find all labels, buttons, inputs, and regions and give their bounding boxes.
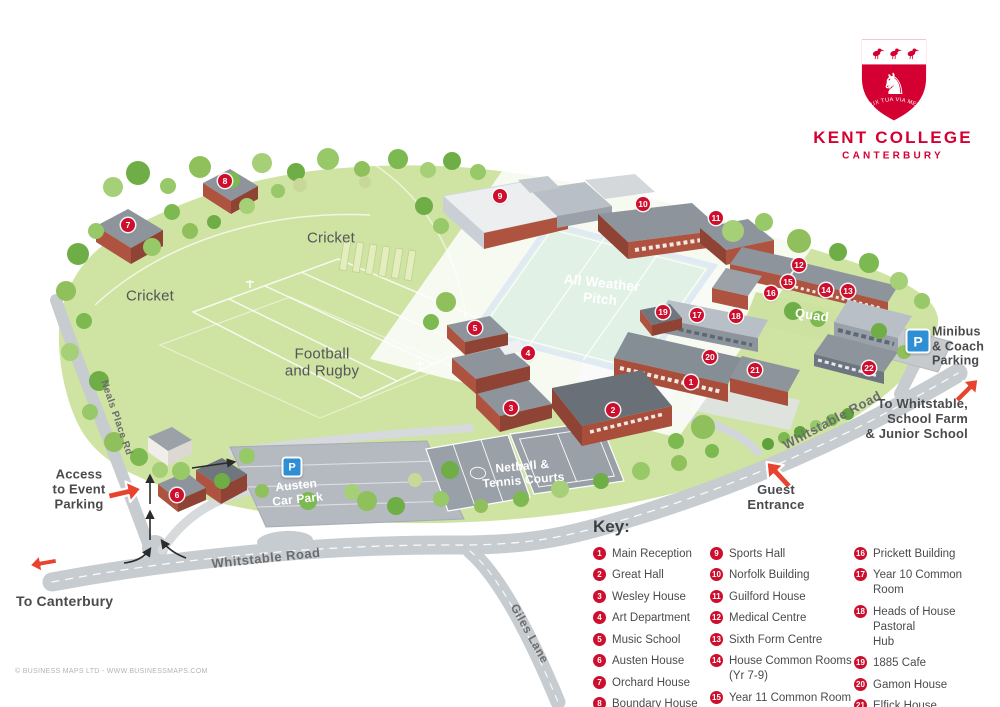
key-column-1: 1Main Reception2Great Hall3Wesley House4… [593,547,710,707]
key-item-label: Art Department [612,611,690,626]
key-item-label: Orchard House [612,676,690,691]
map-marker-3: 3 [504,401,518,415]
key-item-label: Year 11 Common Room [729,691,851,706]
key-item-6: 6Austen House [593,654,710,669]
minibus-coach-parking-label: Minibus & Coach Parking [932,324,984,368]
key-item-label: Music School [612,633,680,648]
access-event-parking-label: Access to Event Parking [53,466,106,511]
football-rugby-field-label: Football and Rugby [285,346,359,381]
key-item-label: Sports Hall [729,547,785,562]
key-item-number: 9 [710,547,723,560]
key-item-label: Norfolk Building [729,568,810,583]
map-marker-6: 6 [170,488,184,502]
key-item-number: 5 [593,633,606,646]
key-item-number: 6 [593,654,606,667]
key-item-number: 14 [710,654,723,667]
key-item-number: 3 [593,590,606,603]
key-column-3: 16Prickett Building17Year 10 Common Room… [854,547,995,707]
key-item-number: 11 [710,590,723,603]
to-canterbury-label: To Canterbury [16,593,113,609]
key-item-5: 5Music School [593,633,710,648]
key-column-2: 9Sports Hall10Norfolk Building11Guilford… [710,547,854,707]
map-marker-16: 16 [764,286,778,300]
map-marker-5: 5 [468,321,482,335]
key-item-label: Elfick House [873,699,937,707]
key-item-label: Prickett Building [873,547,955,562]
to-canterbury-arrow-icon [28,552,58,573]
key-item-number: 17 [854,568,867,581]
map-marker-13: 13 [841,284,855,298]
key-item-number: 8 [593,697,606,707]
map-marker-8: 8 [218,174,232,188]
key-item-11: 11Guilford House [710,590,854,605]
key-item-2: 2Great Hall [593,568,710,583]
austen-parking-icon: P [282,457,303,478]
key-item-8: 8Boundary House [593,697,710,707]
map-marker-2: 2 [606,403,620,417]
key-item-label: House Common Rooms (Yr 7-9) [729,654,852,684]
map-marker-18: 18 [729,309,743,323]
key-item-label: Year 10 Common Room [873,568,995,598]
key-item-number: 20 [854,678,867,691]
key-item-number: 7 [593,676,606,689]
key-item-15: 15Year 11 Common Room [710,691,854,706]
key-item-label: Wesley House [612,590,686,605]
key-item-3: 3Wesley House [593,590,710,605]
key-item-number: 13 [710,633,723,646]
horse-icon: ♞ [881,67,907,101]
map-marker-7: 7 [121,218,135,232]
key-title: Key: [593,517,995,537]
key-columns: 1Main Reception2Great Hall3Wesley House4… [593,547,995,707]
key-item-number: 19 [854,656,867,669]
key-item-label: Guilford House [729,590,806,605]
key-item-label: Boundary House [612,697,698,707]
map-marker-12: 12 [792,258,806,272]
map-marker-9: 9 [493,189,507,203]
key-item-number: 10 [710,568,723,581]
cricket-field-label-right: Cricket [307,229,355,246]
key-item-number: 12 [710,611,723,624]
campus-map: ♞ LUX TUA VIA MEA KENT COLLEGE CANTERBUR… [0,0,1000,707]
map-marker-15: 15 [781,275,795,289]
key-item-16: 16Prickett Building [854,547,995,562]
key-item-label: Main Reception [612,547,692,562]
guest-entrance-label: Guest Entrance [747,482,804,512]
map-marker-11: 11 [709,211,723,225]
key-item-label: Sixth Form Centre [729,633,822,648]
key-item-20: 20Gamon House [854,678,995,693]
key-item-21: 21Elfick House [854,699,995,707]
key-item-13: 13Sixth Form Centre [710,633,854,648]
key-item-number: 18 [854,605,867,618]
copyright-notice: © BUSINESS MAPS LTD - WWW.BUSINESSMAPS.C… [15,668,208,675]
map-marker-20: 20 [703,350,717,364]
to-whitstable-label: To Whitstable, School Farm & Junior Scho… [865,396,968,441]
key-item-18: 18Heads of House Pastoral Hub [854,605,995,650]
key-item-4: 4Art Department [593,611,710,626]
key-item-number: 4 [593,611,606,624]
map-marker-10: 10 [636,197,650,211]
minibus-parking-icon: P [906,329,931,354]
logo-city-name: CANTERBURY [842,151,944,162]
kent-college-crest: ♞ LUX TUA VIA MEA [856,36,932,124]
logo-college-name: KENT COLLEGE [813,128,973,148]
key-item-number: 16 [854,547,867,560]
key-item-17: 17Year 10 Common Room [854,568,995,598]
key-item-label: Austen House [612,654,684,669]
key-item-number: 15 [710,691,723,704]
cricket-field-label-left: Cricket [126,287,174,304]
map-key: Key: 1Main Reception2Great Hall3Wesley H… [593,517,995,707]
key-item-label: Gamon House [873,678,947,693]
map-marker-14: 14 [819,283,833,297]
map-marker-22: 22 [862,361,876,375]
key-item-19: 191885 Cafe [854,656,995,671]
austen-car-park-label: Austen Car Park [270,477,324,510]
key-item-1: 1Main Reception [593,547,710,562]
map-marker-1: 1 [684,375,698,389]
key-item-number: 21 [854,699,867,707]
key-item-14: 14House Common Rooms (Yr 7-9) [710,654,854,684]
key-item-label: Great Hall [612,568,664,583]
key-item-number: 1 [593,547,606,560]
key-item-9: 9Sports Hall [710,547,854,562]
key-item-label: 1885 Cafe [873,656,926,671]
map-marker-21: 21 [748,363,762,377]
map-marker-19: 19 [656,305,670,319]
key-item-7: 7Orchard House [593,676,710,691]
key-item-number: 2 [593,568,606,581]
key-item-12: 12Medical Centre [710,611,854,626]
key-item-label: Medical Centre [729,611,806,626]
key-item-label: Heads of House Pastoral Hub [873,605,995,650]
map-marker-17: 17 [690,308,704,322]
key-item-10: 10Norfolk Building [710,568,854,583]
map-marker-4: 4 [521,346,535,360]
